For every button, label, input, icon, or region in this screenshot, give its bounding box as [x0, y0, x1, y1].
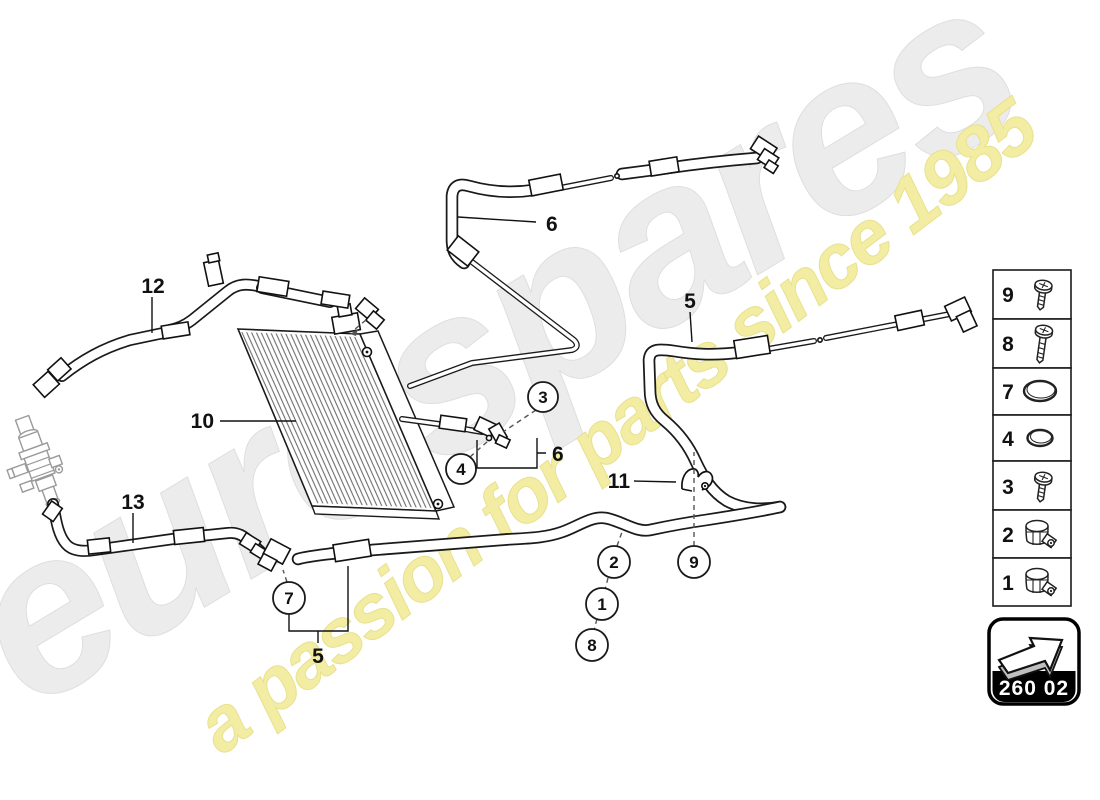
hose-clip — [682, 469, 713, 491]
callout-7-number: 7 — [284, 589, 293, 608]
callout-4-number: 4 — [456, 460, 466, 479]
legend-number: 8 — [1002, 333, 1014, 356]
label-hose-6-top: 6 — [546, 213, 558, 236]
callout-3: 3 — [528, 382, 558, 412]
label-hose-5-bottom: 5 — [312, 645, 324, 668]
label-hose-12: 12 — [141, 275, 164, 298]
callout-8: 8 — [576, 629, 608, 661]
legend-number: 2 — [1002, 524, 1014, 547]
legend-number: 3 — [1002, 476, 1014, 499]
label-condenser-10: 10 — [191, 410, 214, 433]
callout-2: 2 — [598, 546, 630, 578]
legend-table: 9 8 7 4 3 2 1 — [993, 270, 1071, 606]
watermark: eurospares a passion for parts since 198… — [0, 0, 1058, 770]
callout-1: 1 — [586, 588, 618, 620]
label-hose-6-mid: 6 — [552, 443, 564, 466]
callout-1-number: 1 — [597, 595, 606, 614]
callout-9-number: 9 — [689, 553, 698, 572]
legend-number: 1 — [1002, 572, 1014, 595]
callout-7: 7 — [273, 582, 305, 614]
callout-3-number: 3 — [538, 388, 547, 407]
callout-8-number: 8 — [587, 636, 596, 655]
watermark-brand-text: eurospares — [0, 0, 1058, 754]
section-badge: 260 02 — [989, 619, 1079, 704]
legend-number: 4 — [1002, 428, 1014, 451]
badge-code-text: 260 02 — [999, 677, 1069, 700]
callout-9: 9 — [678, 546, 710, 578]
diagram-canvas: eurospares a passion for parts since 198… — [0, 0, 1100, 800]
label-hose-5-right: 5 — [684, 290, 696, 313]
legend-number: 9 — [1002, 284, 1014, 307]
label-hose-13: 13 — [121, 491, 144, 514]
parts-diagram-page: eurospares a passion for parts since 198… — [0, 0, 1100, 800]
callout-2-number: 2 — [609, 553, 618, 572]
callout-4: 4 — [446, 454, 476, 484]
legend-number: 7 — [1002, 381, 1014, 404]
label-clip-11: 11 — [608, 470, 631, 493]
